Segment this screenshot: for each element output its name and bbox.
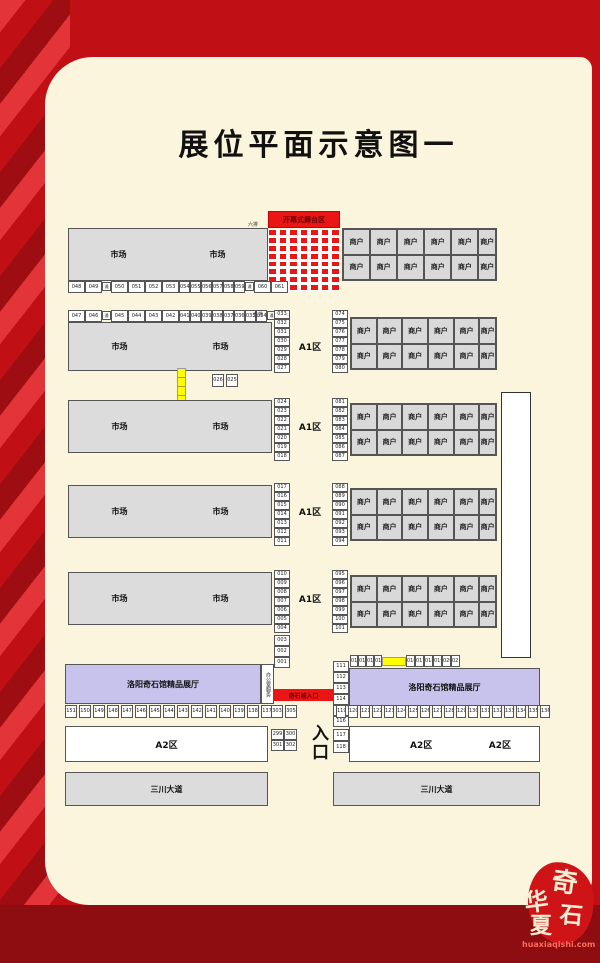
stage-seat-dot	[301, 262, 308, 267]
booth-cell: 057	[212, 281, 223, 293]
merchant-cell: 商户	[402, 430, 428, 456]
booth-cell: 119	[336, 705, 346, 718]
booth-cell: 020	[442, 655, 451, 667]
stage-seat-dot	[280, 238, 287, 243]
booth-cell: 056	[201, 281, 212, 293]
booth-cell: 123	[384, 705, 394, 718]
booth-cell: 015	[274, 501, 290, 510]
stage-seat-dot	[311, 254, 318, 259]
booth-cell: 001	[274, 657, 290, 668]
merchant-grid: 商户商户商户商户商户商户商户商户商户商户商户商户	[350, 575, 497, 628]
booth-cell: 127	[432, 705, 442, 718]
booth-cell: 033	[274, 310, 290, 319]
stage-seat-dot	[332, 269, 339, 274]
booth-cell: 100	[332, 615, 348, 624]
booth-strip: 074075076077078079080	[332, 310, 348, 373]
booth-cell: 084	[332, 425, 348, 434]
booth-cell: 025	[226, 374, 238, 387]
stage-seat-dot	[311, 285, 318, 290]
booth-cell: 018	[424, 655, 433, 667]
booth-cell: 077	[332, 337, 348, 346]
booth-cell: 013	[358, 655, 366, 667]
merchant-cell: 商户	[454, 344, 480, 370]
booth-cell: 129	[456, 705, 466, 718]
booth-cell: 132	[492, 705, 502, 718]
stage-seat-dot	[290, 254, 297, 259]
yellow-highlight-bar	[382, 657, 406, 666]
booth-cell: 027	[274, 364, 290, 373]
booth-cell: 042	[162, 310, 179, 322]
stage-seat-dot	[311, 238, 318, 243]
booth-cell: 112	[333, 672, 349, 683]
entrance-label: 入口	[306, 724, 331, 762]
stage-seat-dot	[301, 238, 308, 243]
booth-cell: 136	[540, 705, 550, 718]
booth-cell: 019	[433, 655, 442, 667]
booth-cell: 300	[284, 729, 297, 740]
booth-cell: 303	[271, 705, 283, 718]
merchant-cell: 商户	[402, 576, 428, 602]
hall-label: 洛阳奇石馆精品展厅	[127, 679, 199, 690]
booth-cell: 040	[190, 310, 201, 322]
booth-cell: 020	[274, 434, 290, 443]
booth-cell: 117	[333, 729, 349, 741]
row-marker-six: 六排	[248, 221, 258, 228]
merchant-cell: 商户	[351, 602, 377, 628]
side-hall-rect	[501, 392, 531, 658]
merchant-cell: 商户	[377, 602, 403, 628]
hall-left: 洛阳奇石馆精品展厅	[65, 664, 261, 704]
booth-cell: 099	[332, 606, 348, 615]
stage-seat-dot	[301, 277, 308, 282]
booth-cell: 081	[332, 398, 348, 407]
booth-strip: 003002001	[274, 635, 290, 668]
booth-cell: 050	[111, 281, 128, 293]
booth-cell: 150	[79, 705, 91, 718]
stage-seat-dot	[322, 262, 329, 267]
stage-seat-dot	[322, 269, 329, 274]
booth-cell: 017	[415, 655, 424, 667]
booth-cell: 101	[332, 624, 348, 633]
stage-seat-dot	[290, 285, 297, 290]
stage-seat-dot	[280, 246, 287, 251]
booth-cell: 095	[332, 570, 348, 579]
merchant-cell: 商户	[402, 515, 428, 541]
booth-cell: 082	[332, 407, 348, 416]
booth-cell: 009	[274, 579, 290, 588]
merchant-cell: 商户	[428, 576, 454, 602]
booth-cell: 146	[135, 705, 147, 718]
market-label: 市场	[175, 506, 266, 517]
booth-cell: 301	[271, 740, 284, 751]
booth-cell: 128	[444, 705, 454, 718]
booth-cell: 147	[121, 705, 133, 718]
booth-cell: 022	[274, 416, 290, 425]
a2-zone-left: A2区	[65, 726, 268, 762]
merchant-cell: 商户	[377, 344, 403, 370]
merchant-cell: 商户	[479, 344, 496, 370]
market-label: 市场	[175, 421, 266, 432]
booth-cell: 111	[333, 661, 349, 672]
booth-cell: 012	[350, 655, 358, 667]
booth-cell: 089	[332, 492, 348, 501]
booth-cell: 121	[360, 705, 370, 718]
booth-cell: 051	[128, 281, 145, 293]
stage-seat-dot	[301, 285, 308, 290]
booth-cell: 061	[271, 281, 288, 293]
booth-cell: 007	[274, 597, 290, 606]
booth-cell: 002	[274, 646, 290, 657]
booth-cell: 016	[274, 492, 290, 501]
stage-seat-dot	[311, 269, 318, 274]
booth-cell: 041	[179, 310, 190, 322]
merchant-cell: 商户	[370, 255, 397, 281]
market-label: 市场	[173, 249, 262, 260]
a2-zone-right: A2区 A2区	[349, 726, 540, 762]
merchant-cell: 商户	[454, 602, 480, 628]
stage-seat-dot	[301, 230, 308, 235]
a2-label: A2区	[155, 738, 177, 751]
booth-strip: 081082083084085086087	[332, 398, 348, 461]
booth-cell: 048	[68, 281, 85, 293]
row-marker-five: 五排	[253, 311, 263, 318]
booth-cell: 043	[145, 310, 162, 322]
booth-cell: 005	[274, 615, 290, 624]
booth-cell: 019	[274, 443, 290, 452]
booth-cell: 140	[219, 705, 231, 718]
merchant-cell: 商户	[428, 344, 454, 370]
office-cell: 办公室服务	[261, 664, 274, 704]
merchant-cell: 商户	[424, 255, 451, 281]
merchant-cell: 商户	[479, 404, 496, 430]
booth-cell: 055	[190, 281, 201, 293]
merchant-cell: 商户	[479, 602, 496, 628]
booth-cell: 029	[274, 346, 290, 355]
booth-cell: 118	[333, 741, 349, 753]
booth-number-row: 012013014015	[350, 655, 382, 667]
booth-cell: 093	[332, 528, 348, 537]
booth-cell: 038	[212, 310, 223, 322]
booth-number-row: 047046通道04504404304204104003903803703603…	[68, 310, 276, 322]
booth-strip: 017016015014013012011	[274, 483, 290, 546]
booth-cell: 098	[332, 597, 348, 606]
booth-cell: 016	[406, 655, 415, 667]
zone-label-a1: A1区	[290, 485, 330, 538]
merchant-cell: 商户	[397, 229, 424, 255]
booth-cell: 090	[332, 501, 348, 510]
merchant-cell: 商户	[402, 344, 428, 370]
merchant-cell: 商户	[428, 318, 454, 344]
booth-number-row: 026025	[212, 374, 238, 387]
booth-strip: 095096097098099100101	[332, 570, 348, 633]
hall-label: 洛阳奇石馆精品展厅	[409, 682, 481, 693]
merchant-cell: 商户	[377, 318, 403, 344]
aisle-cell: 通道	[245, 282, 254, 291]
booth-cell: 145	[149, 705, 161, 718]
booth-cell: 021	[274, 425, 290, 434]
booth-cell: 079	[332, 355, 348, 364]
booth-cell: 302	[284, 740, 297, 751]
booth-cell: 144	[163, 705, 175, 718]
booth-cell: 014	[274, 510, 290, 519]
market-label: 市场	[175, 593, 266, 604]
stage-seat-dot	[332, 246, 339, 251]
merchant-cell: 商户	[479, 489, 496, 515]
booth-strip: 088089090091092093094	[332, 483, 348, 546]
zone-label-a1: A1区	[290, 322, 330, 371]
stage-seat-dot	[332, 230, 339, 235]
stage-seat-dot	[301, 254, 308, 259]
booth-cell: 130	[468, 705, 478, 718]
booth-cell: 143	[177, 705, 189, 718]
booth-cell: 126	[420, 705, 430, 718]
booth-cell: 053	[162, 281, 179, 293]
stone-city-entrance-bar: 奇石城入口	[274, 689, 333, 701]
merchant-cell: 商户	[343, 255, 370, 281]
merchant-cell: 商户	[428, 602, 454, 628]
merchant-grid: 商户商户商户商户商户商户商户商户商户商户商户商户	[350, 317, 497, 370]
merchant-cell: 商户	[402, 602, 428, 628]
zone-label-a1: A1区	[290, 572, 330, 625]
stage-seat-dot	[290, 277, 297, 282]
merchant-cell: 商户	[454, 404, 480, 430]
stage-seat-dot	[269, 246, 276, 251]
booth-cell: 078	[332, 346, 348, 355]
merchant-cell: 商户	[428, 489, 454, 515]
booth-cell: 012	[274, 528, 290, 537]
stage-seat-dot	[290, 269, 297, 274]
stage-seat-dot	[280, 269, 287, 274]
stage-seat-dot	[322, 246, 329, 251]
merchant-cell: 商户	[479, 430, 496, 456]
a1-label: A1区	[299, 340, 321, 353]
stage-seat-dot	[332, 238, 339, 243]
aisle-cell: 通道	[102, 282, 111, 291]
market-label: 市场	[74, 341, 165, 352]
aisle-cell: 通道	[102, 311, 111, 320]
booth-cell: 122	[372, 705, 382, 718]
merchant-grid: 商户商户商户商户商户商户商户商户商户商户商户商户	[342, 228, 497, 281]
market-block: 市场 市场	[68, 228, 268, 281]
booth-cell: 046	[85, 310, 102, 322]
avenue-right: 三川大道	[333, 772, 540, 806]
merchant-cell: 商户	[451, 255, 478, 281]
booth-cell: 023	[274, 407, 290, 416]
huaxia-qishi-logo: 奇 华 夏 石 huaxiaqishi.com	[512, 856, 600, 960]
merchant-cell: 商户	[343, 229, 370, 255]
merchant-cell: 商户	[402, 404, 428, 430]
booth-cell: 060	[254, 281, 271, 293]
booth-cell: 138	[247, 705, 259, 718]
booth-cell: 088	[332, 483, 348, 492]
merchant-grid: 商户商户商户商户商户商户商户商户商户商户商户商户	[350, 403, 497, 456]
booth-cell: 133	[504, 705, 514, 718]
booth-cell: 096	[332, 579, 348, 588]
avenue-label: 三川大道	[151, 784, 183, 795]
merchant-cell: 商户	[479, 576, 496, 602]
merchant-cell: 商户	[370, 229, 397, 255]
booth-cell: 124	[396, 705, 406, 718]
merchant-cell: 商户	[351, 344, 377, 370]
stage-seat-dot	[269, 238, 276, 243]
stage-seat-dot	[322, 238, 329, 243]
booth-cell: 085	[332, 434, 348, 443]
a2-label: A2区	[489, 738, 511, 751]
booth-cell: 045	[111, 310, 128, 322]
market-block: 市场 市场	[68, 485, 272, 538]
stage-seat-dot	[290, 262, 297, 267]
booth-cell: 305	[285, 705, 297, 718]
booth-cell: 148	[107, 705, 119, 718]
booth-cell: 044	[128, 310, 145, 322]
market-label: 市场	[74, 593, 165, 604]
market-label: 市场	[74, 421, 165, 432]
booth-cell: 030	[274, 337, 290, 346]
booth-cell: 134	[516, 705, 526, 718]
stage-area-label: 开幕式舞台区	[268, 211, 340, 228]
booth-cell: 142	[191, 705, 203, 718]
stage-seat-dot	[290, 230, 297, 235]
booth-cell: 037	[223, 310, 234, 322]
booth-cell: 010	[274, 570, 290, 579]
stage-seat-dot	[311, 262, 318, 267]
avenue-left: 三川大道	[65, 772, 268, 806]
booth-cell: 018	[274, 452, 290, 461]
booth-cell: 058	[223, 281, 234, 293]
booth-cell: 076	[332, 328, 348, 337]
market-block: 市场 市场	[68, 322, 272, 371]
booth-strip: 117118	[333, 729, 349, 753]
booth-cell: 024	[274, 398, 290, 407]
logo-char: 夏	[530, 908, 552, 940]
a1-label: A1区	[299, 505, 321, 518]
stage-seat-dot	[332, 254, 339, 259]
merchant-cell: 商户	[454, 489, 480, 515]
booth-number-row: 303305	[271, 705, 297, 718]
booth-number-row: 048049通道050051052053054055056057058059通道…	[68, 281, 288, 293]
booth-cell: 059	[234, 281, 245, 293]
merchant-cell: 商户	[454, 515, 480, 541]
stage-seat-dot	[280, 254, 287, 259]
a1-label: A1区	[299, 592, 321, 605]
booth-cell: 135	[528, 705, 538, 718]
booth-cell: 086	[332, 443, 348, 452]
stage-seat-dot	[280, 262, 287, 267]
booth-cell: 004	[274, 624, 290, 633]
booth-cell: 114	[333, 694, 349, 705]
booth-cell: 028	[274, 355, 290, 364]
market-label: 市场	[74, 506, 165, 517]
stage-seat-dot	[269, 262, 276, 267]
merchant-cell: 商户	[402, 489, 428, 515]
stage-seat-dot	[311, 230, 318, 235]
merchant-cell: 商户	[428, 404, 454, 430]
merchant-cell: 商户	[377, 404, 403, 430]
booth-strip: 024023022021020019018	[274, 398, 290, 461]
booth-cell: 131	[480, 705, 490, 718]
stage-seat-dot	[269, 269, 276, 274]
booth-cell: 008	[274, 588, 290, 597]
stage-seat-dot	[332, 277, 339, 282]
merchant-cell: 商户	[351, 576, 377, 602]
merchant-cell: 商户	[428, 515, 454, 541]
booth-cell: 141	[205, 705, 217, 718]
merchant-cell: 商户	[351, 318, 377, 344]
merchant-cell: 商户	[479, 318, 496, 344]
booth-strip: 010009008007006005004	[274, 570, 290, 633]
booth-cell: 015	[374, 655, 382, 667]
merchant-cell: 商户	[451, 229, 478, 255]
merchant-cell: 商户	[377, 515, 403, 541]
merchant-cell: 商户	[402, 318, 428, 344]
dark-red-bottom-band	[0, 905, 600, 963]
stage-seat-dot	[311, 277, 318, 282]
merchant-cell: 商户	[377, 489, 403, 515]
booth-cell: 091	[332, 510, 348, 519]
booth-cell: 149	[93, 705, 105, 718]
booth-cell: 006	[274, 606, 290, 615]
merchant-cell: 商户	[478, 255, 496, 281]
booth-cell: 075	[332, 319, 348, 328]
booth-cell: 036	[234, 310, 245, 322]
avenue-label: 三川大道	[421, 784, 453, 795]
merchant-cell: 商户	[454, 430, 480, 456]
logo-website: huaxiaqishi.com	[522, 940, 595, 949]
merchant-cell: 商户	[397, 255, 424, 281]
stage-seat-dot	[269, 254, 276, 259]
booth-cell: 049	[85, 281, 102, 293]
stage-seat-dot	[280, 230, 287, 235]
merchant-cell: 商户	[377, 576, 403, 602]
merchant-cell: 商户	[351, 515, 377, 541]
booth-cell: 021	[451, 655, 460, 667]
booth-cell: 054	[179, 281, 190, 293]
booth-cell: 125	[408, 705, 418, 718]
logo-char: 石	[559, 895, 585, 931]
market-block: 市场 市场	[68, 400, 272, 453]
market-block: 市场 市场	[68, 572, 272, 625]
booth-cell: 026	[212, 374, 224, 387]
merchant-cell: 商户	[377, 430, 403, 456]
booth-cell: 052	[145, 281, 162, 293]
booth-cell: 097	[332, 588, 348, 597]
booth-cell: 113	[333, 683, 349, 694]
stage-seat-dot	[301, 269, 308, 274]
booth-cell: 047	[68, 310, 85, 322]
booth-cell: 032	[274, 319, 290, 328]
booth-cell: 299	[271, 729, 284, 740]
merchant-cell: 商户	[478, 229, 496, 255]
booth-cell: 139	[233, 705, 245, 718]
page-title: 展位平面示意图一	[45, 120, 592, 164]
stage-seat-dot	[301, 246, 308, 251]
booth-cell: 087	[332, 452, 348, 461]
merchant-grid: 商户商户商户商户商户商户商户商户商户商户商户商户	[350, 488, 497, 541]
booth-cell: 017	[274, 483, 290, 492]
merchant-cell: 商户	[428, 430, 454, 456]
booth-strip: 033032031030029028027	[274, 310, 290, 373]
booth-cell: 011	[274, 537, 290, 546]
booth-number-row: 016017018019020021	[406, 655, 460, 667]
market-label: 市场	[175, 341, 266, 352]
stage-seat-dot	[311, 246, 318, 251]
merchant-cell: 商户	[479, 515, 496, 541]
mini-booth-grid: 299300301302	[271, 729, 297, 751]
stage-seat-dot	[290, 246, 297, 251]
booth-number-row: 1191201211221231241251261271281291301311…	[336, 705, 550, 718]
stage-seat-dot	[332, 285, 339, 290]
booth-cell: 151	[65, 705, 77, 718]
